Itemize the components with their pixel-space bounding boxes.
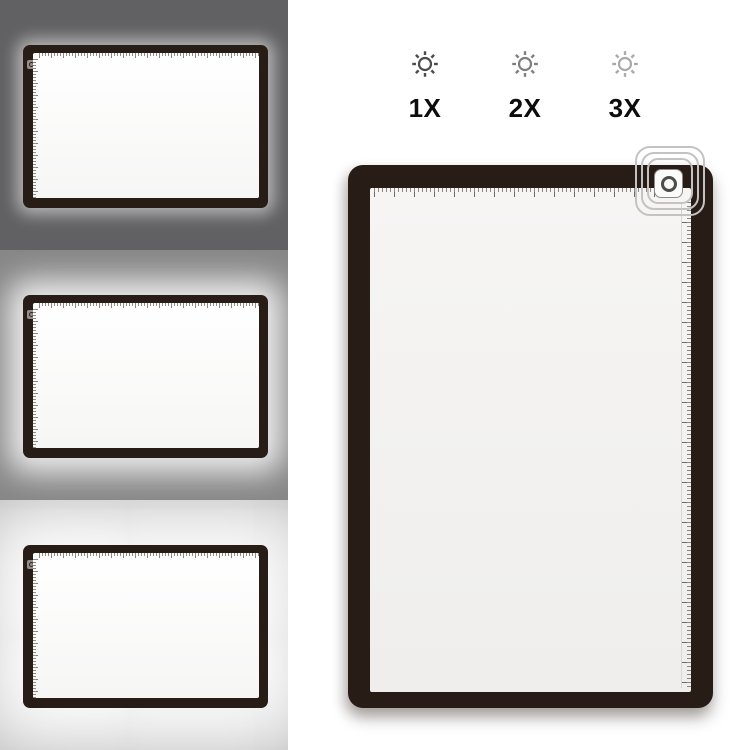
brightness-preview-2x xyxy=(0,250,288,500)
power-button-icon xyxy=(654,169,683,198)
ruler-top-icon xyxy=(39,303,259,308)
ruler-left-icon xyxy=(33,59,38,198)
brightness-label: 2X xyxy=(509,93,542,124)
brightness-level-3x: 3X xyxy=(583,50,667,124)
ruler-right-icon xyxy=(681,202,691,688)
sun-brightness-icon xyxy=(411,50,439,78)
light-pad-screen xyxy=(33,553,259,698)
power-ring-icon xyxy=(661,176,677,192)
light-pad-thumbnail-1x xyxy=(23,45,268,208)
ruler-top-icon xyxy=(374,188,677,197)
brightness-level-1x: 1X xyxy=(383,50,467,124)
brightness-preview-column xyxy=(0,0,288,750)
sun-brightness-icon xyxy=(511,50,539,78)
light-pad-screen xyxy=(33,303,259,448)
product-image: 1X 2X xyxy=(0,0,750,750)
brightness-level-2x: 2X xyxy=(483,50,567,124)
brightness-label: 3X xyxy=(609,93,642,124)
ruler-top-icon xyxy=(39,553,259,558)
light-pad-screen xyxy=(33,53,259,198)
light-pad-main xyxy=(348,165,713,708)
ruler-left-icon xyxy=(33,309,38,448)
brightness-legend: 1X 2X xyxy=(383,50,667,124)
ruler-left-icon xyxy=(33,559,38,698)
light-pad-thumbnail-3x xyxy=(23,545,268,708)
sun-brightness-icon xyxy=(611,50,639,78)
light-pad-thumbnail-2x xyxy=(23,295,268,458)
brightness-preview-3x xyxy=(0,500,288,750)
ruler-top-icon xyxy=(39,53,259,58)
brightness-label: 1X xyxy=(409,93,442,124)
light-pad-screen xyxy=(370,188,691,692)
brightness-preview-1x xyxy=(0,0,288,250)
